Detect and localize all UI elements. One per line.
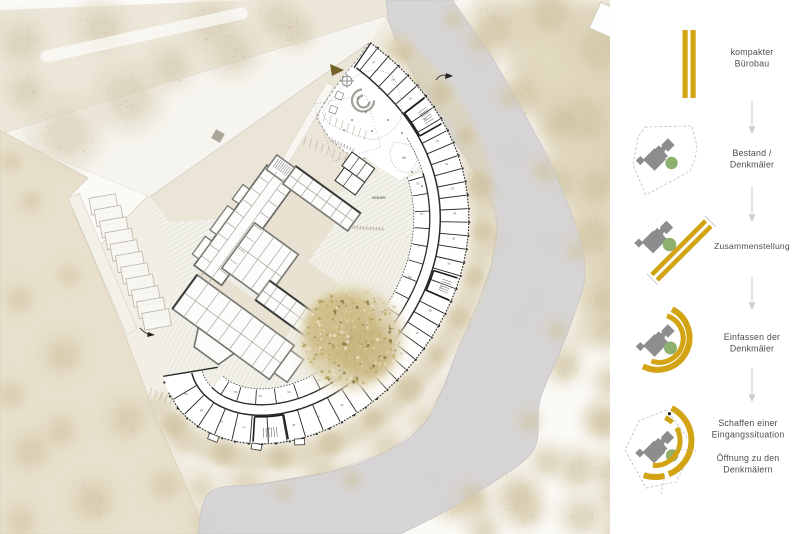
svg-text:47: 47 — [243, 426, 247, 430]
svg-text:32: 32 — [445, 162, 449, 166]
svg-text:50: 50 — [184, 392, 188, 396]
svg-text:34: 34 — [453, 212, 457, 216]
svg-text:58: 58 — [417, 244, 421, 248]
svg-text:Schaffen einer: Schaffen einer — [718, 418, 777, 428]
svg-text:30: 30 — [424, 117, 428, 121]
svg-text:45: 45 — [292, 423, 296, 427]
svg-text:Einfassen der: Einfassen der — [724, 332, 780, 342]
svg-text:46: 46 — [267, 427, 271, 431]
svg-text:65: 65 — [259, 394, 263, 398]
svg-text:28: 28 — [391, 78, 395, 82]
svg-text:27: 27 — [372, 60, 376, 64]
svg-text:34: 34 — [402, 156, 406, 160]
svg-text:Bürobau: Bürobau — [735, 59, 770, 69]
svg-text:KINDER: KINDER — [372, 196, 386, 200]
svg-text:48: 48 — [220, 420, 224, 424]
svg-text:Eingangssituation: Eingangssituation — [712, 430, 785, 440]
svg-text:44: 44 — [317, 415, 321, 419]
svg-text:39: 39 — [415, 331, 419, 335]
svg-text:Bestand /: Bestand / — [733, 148, 772, 158]
svg-text:Öffnung zu den: Öffnung zu den — [717, 453, 780, 463]
svg-text:56: 56 — [416, 182, 420, 186]
svg-text:kompakter: kompakter — [731, 47, 774, 57]
svg-text:29: 29 — [409, 97, 413, 101]
svg-text:33: 33 — [451, 187, 455, 191]
svg-text:49: 49 — [200, 408, 204, 412]
svg-text:37: 37 — [439, 286, 443, 290]
svg-text:Denkmälern: Denkmälern — [723, 465, 772, 475]
svg-text:Denkmäler: Denkmäler — [730, 160, 774, 170]
svg-text:31: 31 — [436, 139, 440, 143]
svg-text:64: 64 — [287, 390, 291, 394]
svg-text:Zusammenstellung: Zusammenstellung — [714, 241, 790, 251]
svg-text:35: 35 — [452, 237, 456, 241]
svg-text:43: 43 — [340, 403, 344, 407]
svg-text:57: 57 — [420, 212, 424, 216]
svg-text:Denkmäler: Denkmäler — [730, 344, 774, 354]
svg-text:38: 38 — [429, 309, 433, 313]
svg-text:66: 66 — [234, 390, 238, 394]
svg-text:59: 59 — [408, 275, 412, 279]
svg-text:36: 36 — [447, 261, 451, 265]
